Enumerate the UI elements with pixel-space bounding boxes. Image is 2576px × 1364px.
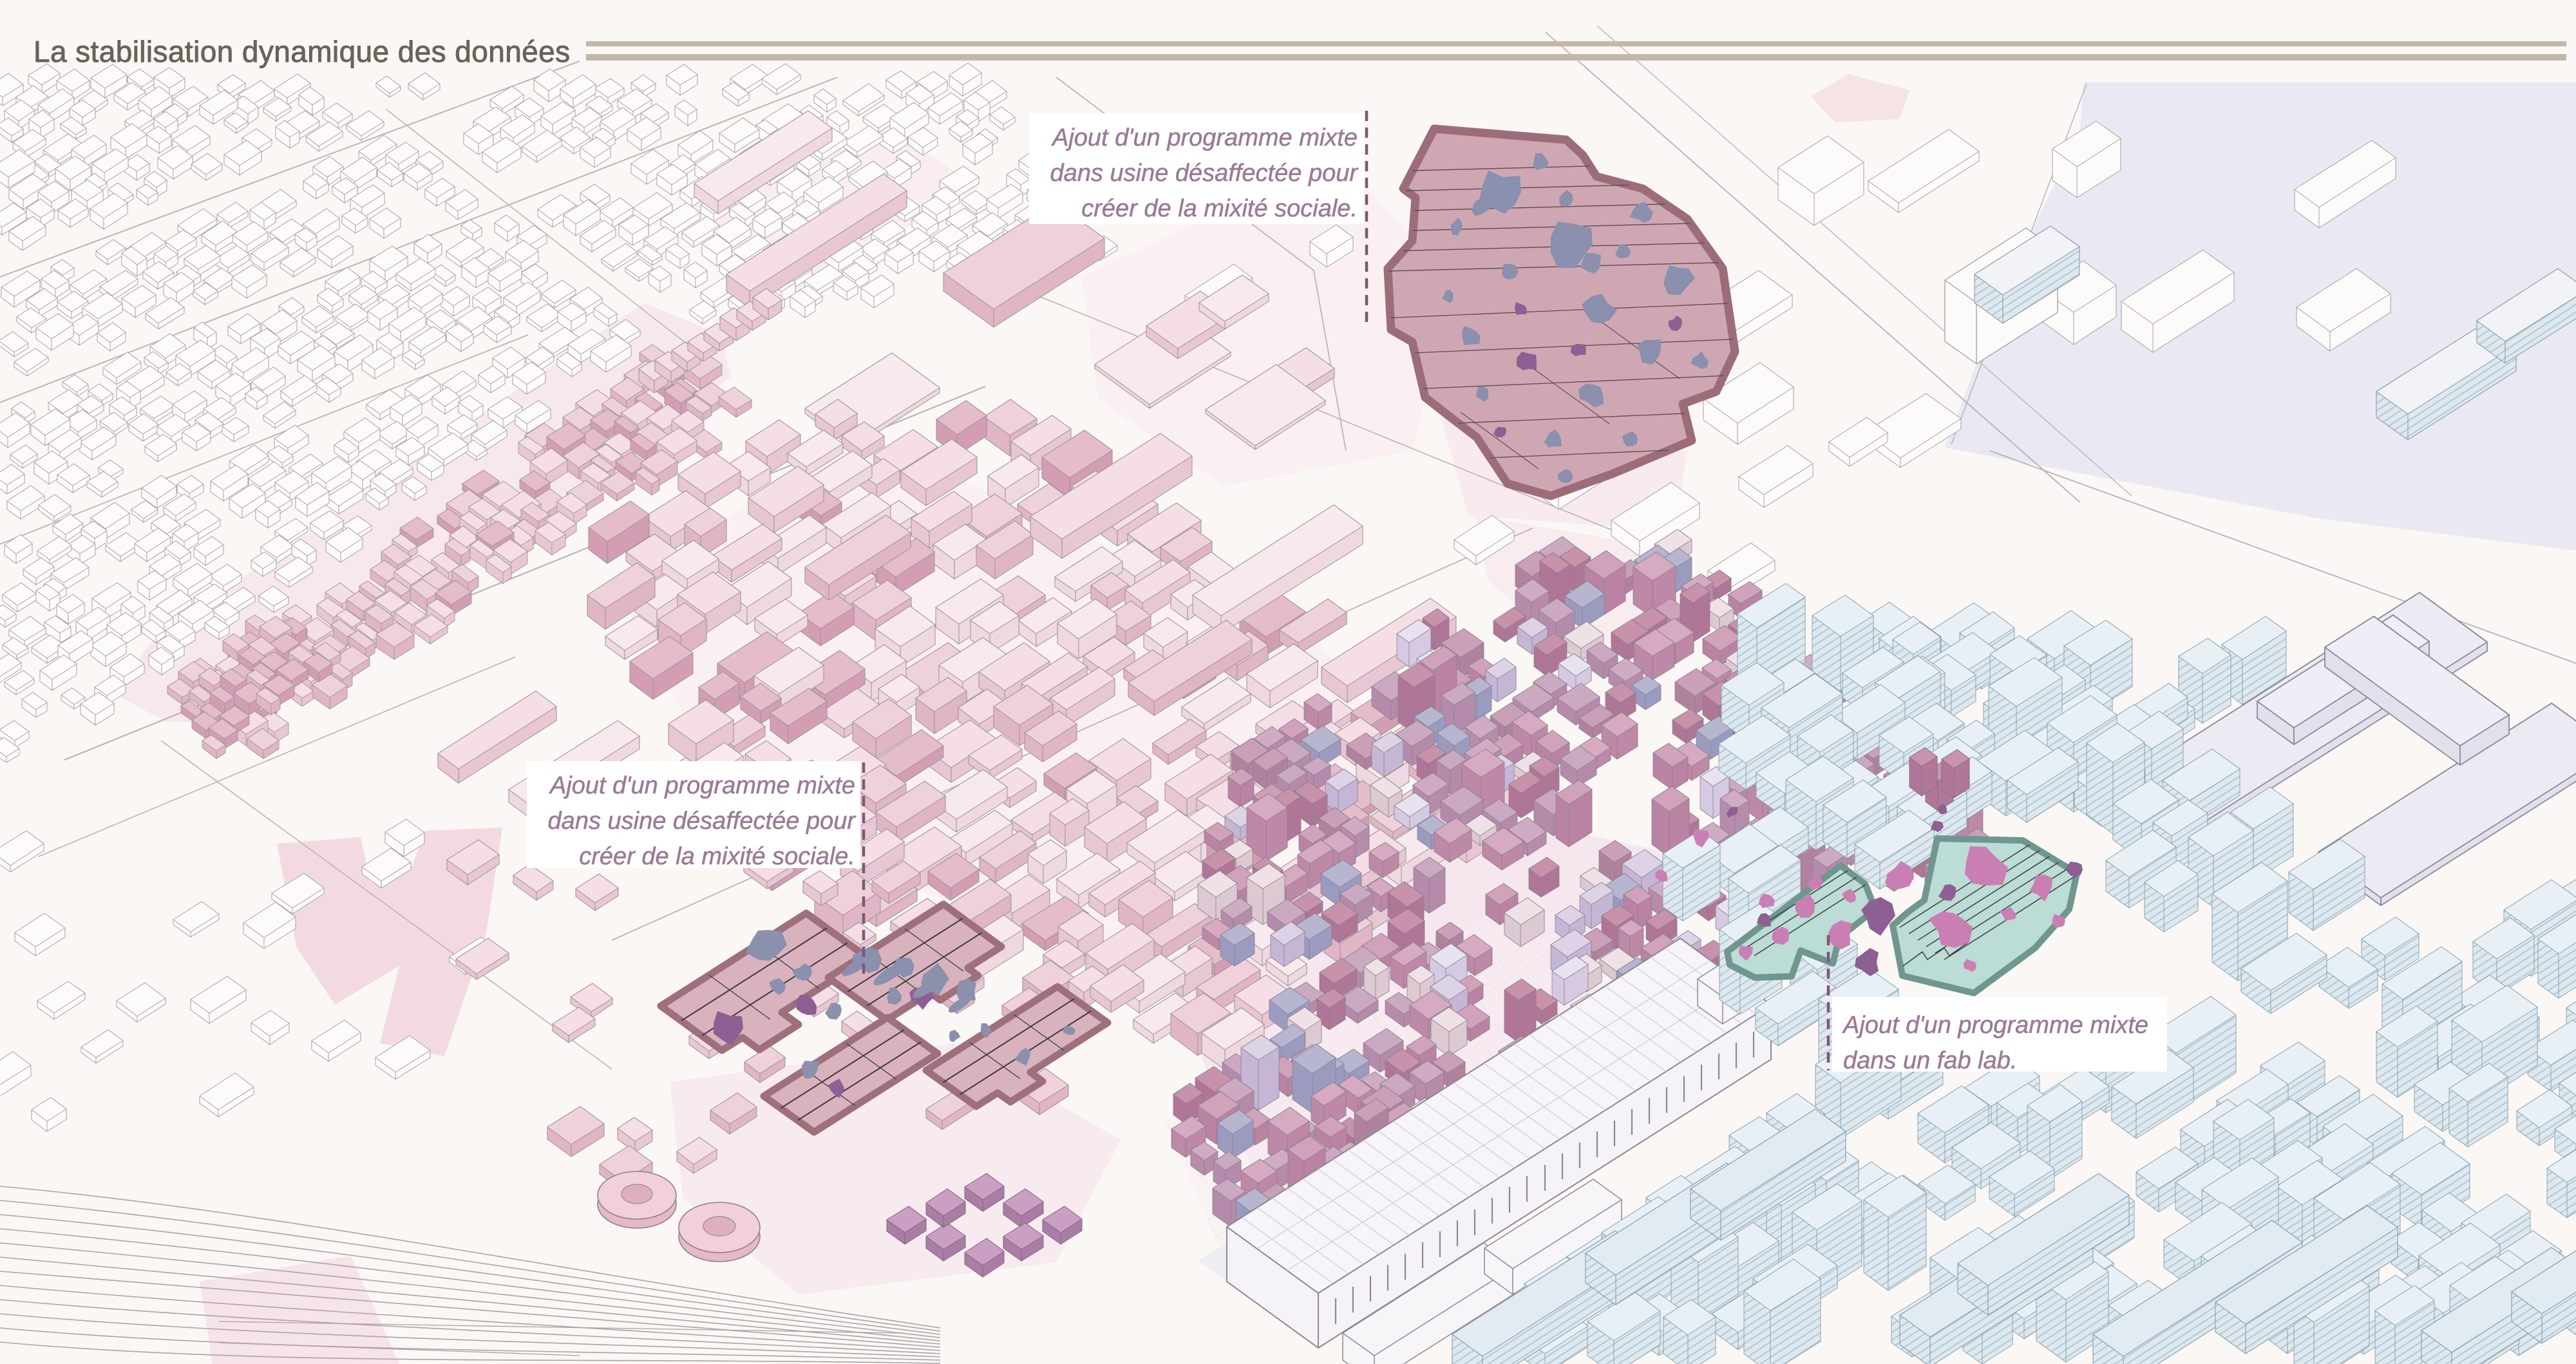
svg-text:Ajout d'un programme mixte: Ajout d'un programme mixte (549, 772, 855, 799)
svg-text:créer de la mixité sociale.: créer de la mixité sociale. (579, 843, 855, 870)
svg-text:dans usine désaffectée pour: dans usine désaffectée pour (1050, 160, 1359, 187)
svg-text:Ajout d'un programme mixte: Ajout d'un programme mixte (1842, 1012, 2148, 1039)
svg-text:dans un fab lab.: dans un fab lab. (1843, 1047, 2017, 1074)
svg-text:créer de la mixité sociale.: créer de la mixité sociale. (1081, 195, 1358, 222)
svg-text:dans usine désaffectée pour: dans usine désaffectée pour (548, 808, 857, 835)
svg-text:Ajout d'un programme mixte: Ajout d'un programme mixte (1051, 124, 1358, 151)
svg-text:La stabilisation dynamique des: La stabilisation dynamique des données (33, 35, 571, 68)
